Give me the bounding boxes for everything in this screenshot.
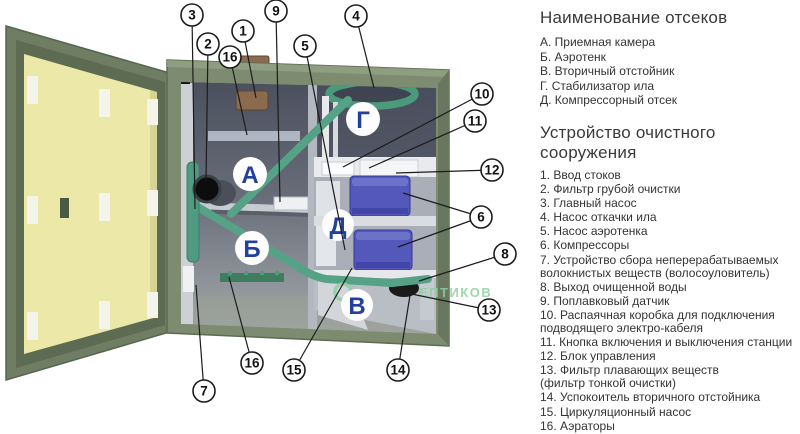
door-clip <box>27 76 38 104</box>
aerator-a <box>208 131 300 141</box>
svg-text:5: 5 <box>301 39 309 54</box>
door-clip <box>147 99 158 125</box>
svg-text:12: 12 <box>484 163 499 178</box>
svg-text:Г: Г <box>356 107 370 134</box>
callout-9: 9 <box>265 0 287 22</box>
svg-text:2: 2 <box>204 37 212 52</box>
compartment-item: В. Вторичный отстойник <box>540 64 798 79</box>
hair-catcher <box>183 266 194 292</box>
svg-text:Б: Б <box>243 236 260 263</box>
callout-16-top: 16 <box>219 46 241 68</box>
device-item: 12. Блок управления <box>540 350 798 363</box>
svg-text:16: 16 <box>244 356 260 371</box>
device-item: 8. Выход очищенной воды <box>540 281 798 294</box>
float-sensor <box>274 197 308 210</box>
device-item: 13. Фильтр плавающих веществ (фильтр тон… <box>540 364 798 390</box>
label-compartment-v: В <box>341 289 373 321</box>
svg-text:1: 1 <box>239 24 247 39</box>
callout-2: 2 <box>197 33 219 55</box>
device-item: 6. Компрессоры <box>540 239 798 252</box>
device-item: 1. Ввод стоков <box>540 169 798 182</box>
compartment-item: Д. Компрессорный отсек <box>540 93 798 108</box>
callout-14: 14 <box>387 359 409 381</box>
compartments-list: А. Приемная камера Б. Аэротенк В. Вторич… <box>540 35 798 108</box>
devices-title: Устройство очистного сооружения <box>540 123 798 163</box>
device-item: 9. Поплавковый датчик <box>540 295 798 308</box>
tank-body <box>167 60 449 346</box>
svg-text:9: 9 <box>272 4 280 19</box>
compressor-2 <box>354 230 412 270</box>
label-compartment-b: Б <box>235 231 269 265</box>
compartment-item: А. Приемная камера <box>540 35 798 50</box>
label-compartment-g: Г <box>346 102 380 136</box>
door-clip <box>27 312 38 340</box>
callout-15: 15 <box>283 359 305 381</box>
door-clip <box>147 292 158 318</box>
compartment-item: Г. Стабилизатор ила <box>540 79 798 94</box>
door-panel <box>24 54 157 354</box>
device-item: 16. Аэраторы <box>540 420 798 433</box>
compressor-1 <box>350 176 410 216</box>
control-unit <box>360 160 418 177</box>
device-item: 10. Распаячная коробка для подключения п… <box>540 309 798 335</box>
callout-6: 6 <box>470 206 492 228</box>
callout-1: 1 <box>232 20 254 42</box>
svg-text:7: 7 <box>200 384 208 399</box>
door-clip <box>99 193 110 221</box>
septic-station-figure: ЕПТИКОВ А Б Г Д В <box>0 0 800 417</box>
door-clip <box>99 89 110 117</box>
callout-16-bottom: 16 <box>241 352 263 374</box>
air-pipe <box>322 96 329 164</box>
tank-frame-right-face <box>438 70 449 346</box>
callout-4: 4 <box>345 5 367 27</box>
open-door <box>6 26 173 380</box>
svg-text:11: 11 <box>468 114 483 129</box>
callout-8: 8 <box>494 243 516 265</box>
callout-5: 5 <box>294 35 316 57</box>
door-lock-handle <box>60 198 69 218</box>
callout-13: 13 <box>478 299 500 321</box>
svg-text:4: 4 <box>352 9 360 24</box>
legend-panel: Наименование отсеков А. Приемная камера … <box>540 8 798 434</box>
device-item: 11. Кнопка включения и выключения станци… <box>540 336 798 349</box>
device-item: 7. Устройство сбора неперерабатываемых в… <box>540 254 798 280</box>
svg-text:В: В <box>348 293 365 320</box>
compartments-title: Наименование отсеков <box>540 8 798 28</box>
device-item: 14. Успокоитель вторичного отстойника <box>540 391 798 404</box>
devices-list: 1. Ввод стоков 2. Фильтр грубой очистки … <box>540 169 798 433</box>
callout-10: 10 <box>471 83 493 105</box>
device-item: 5. Насос аэротенка <box>540 225 798 238</box>
callout-12: 12 <box>481 159 503 181</box>
svg-text:16: 16 <box>222 50 238 65</box>
door-clip <box>99 301 110 329</box>
main-pump <box>187 162 199 262</box>
compartment-item: Б. Аэротенк <box>540 50 798 65</box>
svg-text:8: 8 <box>501 247 509 262</box>
svg-text:А: А <box>241 162 258 189</box>
svg-text:15: 15 <box>286 363 302 378</box>
svg-text:3: 3 <box>188 8 196 23</box>
device-item: 4. Насос откачки ила <box>540 211 798 224</box>
svg-text:6: 6 <box>477 210 485 225</box>
equipment-diagram: ЕПТИКОВ А Б Г Д В <box>0 0 540 417</box>
callout-3: 3 <box>181 4 203 26</box>
tank-interior <box>181 75 437 334</box>
coarse-filter-opening <box>194 176 220 202</box>
callout-7: 7 <box>193 380 215 402</box>
svg-text:10: 10 <box>474 87 489 102</box>
callout-11: 11 <box>464 110 486 132</box>
label-compartment-a: А <box>233 157 267 191</box>
device-item: 2. Фильтр грубой очистки <box>540 183 798 196</box>
door-clip <box>147 190 158 216</box>
svg-text:14: 14 <box>390 363 406 378</box>
door-clip <box>27 196 38 224</box>
device-item: 3. Главный насос <box>540 197 798 210</box>
svg-text:13: 13 <box>481 303 497 318</box>
